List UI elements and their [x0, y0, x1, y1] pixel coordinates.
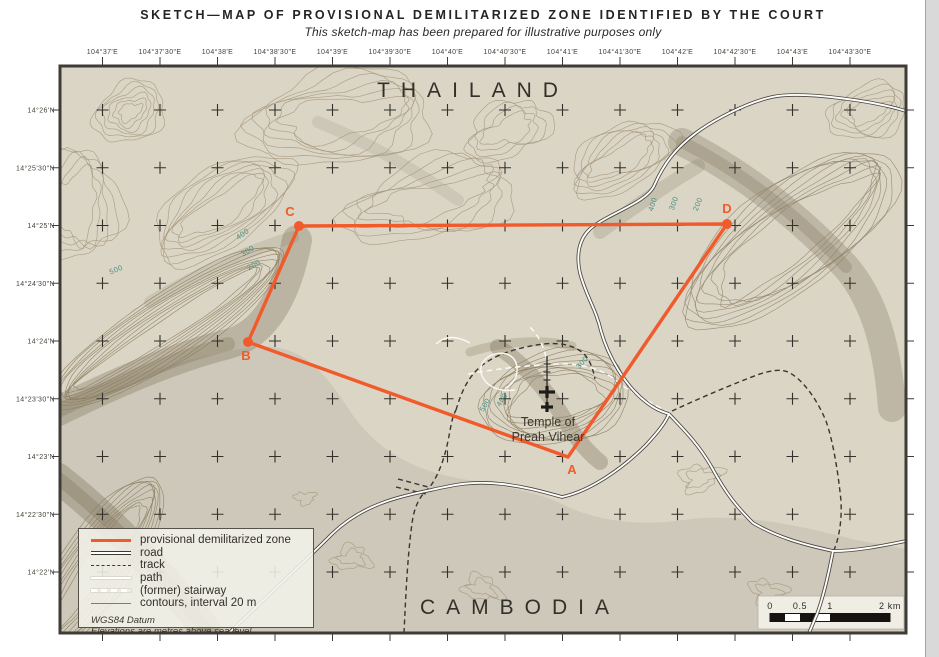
zone-label-A: A [567, 462, 577, 477]
longitude-label: 104°38'E [202, 48, 233, 56]
legend-item-road: road [91, 547, 313, 560]
zone-label-D: D [722, 201, 731, 216]
longitude-label: 104°39'30"E [369, 48, 412, 56]
zone-point-B [243, 337, 253, 347]
latitude-label: 14°24'30"N [16, 280, 55, 288]
legend-swatch-track [91, 565, 131, 566]
longitude-label: 104°38'30"E [254, 48, 297, 56]
legend-swatch-road [91, 551, 131, 555]
legend-datum: WGS84 Datum [91, 615, 313, 627]
latitude-label: 14°22'N [27, 569, 55, 577]
zone-point-C [294, 221, 304, 231]
legend-item-cont: contours, interval 20 m [91, 597, 313, 610]
legend-swatch-cont [91, 603, 131, 604]
legend-swatch-zone [91, 539, 131, 542]
longitude-label: 104°37'30"E [139, 48, 182, 56]
zone-point-D [722, 219, 732, 229]
latitude-label: 14°23'N [27, 453, 55, 461]
longitude-label: 104°40'E [432, 48, 463, 56]
latitude-label: 14°26'N [27, 107, 55, 115]
scale-tick-label: 0 [767, 601, 773, 611]
country-label-cambodia: CAMBODIA [420, 596, 620, 619]
legend-swatch-path [91, 577, 131, 579]
legend-item-label: track [140, 559, 165, 571]
legend-rows: provisional demilitarized zoneroadtrackp… [91, 534, 313, 610]
longitude-label: 104°39'E [317, 48, 348, 56]
scale-tick-label: 0.5 [793, 601, 807, 611]
sketch-map-page: SKETCH—MAP OF PROVISIONAL DEMILITARIZED … [0, 0, 939, 657]
scale-tick-label: 1 [827, 601, 833, 611]
legend-item-label: (former) stairway [140, 585, 226, 597]
legend-item-path: path [91, 572, 313, 585]
legend-item-label: path [140, 572, 162, 584]
scale-tick-label: 2 km [879, 601, 901, 611]
legend-item-label: contours, interval 20 m [140, 597, 256, 609]
longitude-label: 104°42'E [662, 48, 693, 56]
latitude-label: 14°25'30"N [16, 164, 55, 172]
temple-label-line2: Preah Vihear [512, 430, 585, 444]
longitude-label: 104°43'E [777, 48, 808, 56]
latitude-label: 14°23'30"N [16, 395, 55, 403]
legend-item-stair: (former) stairway [91, 584, 313, 597]
latitude-label: 14°22'30"N [16, 511, 55, 519]
latitude-label: 14°25'N [27, 222, 55, 230]
legend-footnotes: WGS84 Datum Elevations are metres above … [91, 615, 313, 638]
legend-item-zone: provisional demilitarized zone [91, 534, 313, 547]
longitude-label: 104°37'E [87, 48, 118, 56]
legend-item-label: provisional demilitarized zone [140, 534, 291, 546]
legend-item-label: road [140, 547, 163, 559]
zone-label-B: B [241, 348, 250, 363]
latitude-label: 14°24'N [27, 338, 55, 346]
country-label-thailand: THAILAND [377, 79, 569, 102]
zone-label-C: C [285, 204, 295, 219]
longitude-label: 104°43'30"E [829, 48, 872, 56]
legend-swatch-stair [91, 589, 131, 591]
longitude-label: 104°41'30"E [599, 48, 642, 56]
legend-elevation-note: Elevations are metres above sea level [91, 626, 313, 638]
longitude-label: 104°41'E [547, 48, 578, 56]
temple-label-line1: Temple of [521, 415, 576, 429]
longitude-label: 104°40'30"E [484, 48, 527, 56]
scale-bar: 00.512 km [758, 596, 904, 629]
legend: provisional demilitarized zoneroadtrackp… [78, 528, 314, 628]
legend-item-track: track [91, 559, 313, 572]
longitude-label: 104°42'30"E [714, 48, 757, 56]
